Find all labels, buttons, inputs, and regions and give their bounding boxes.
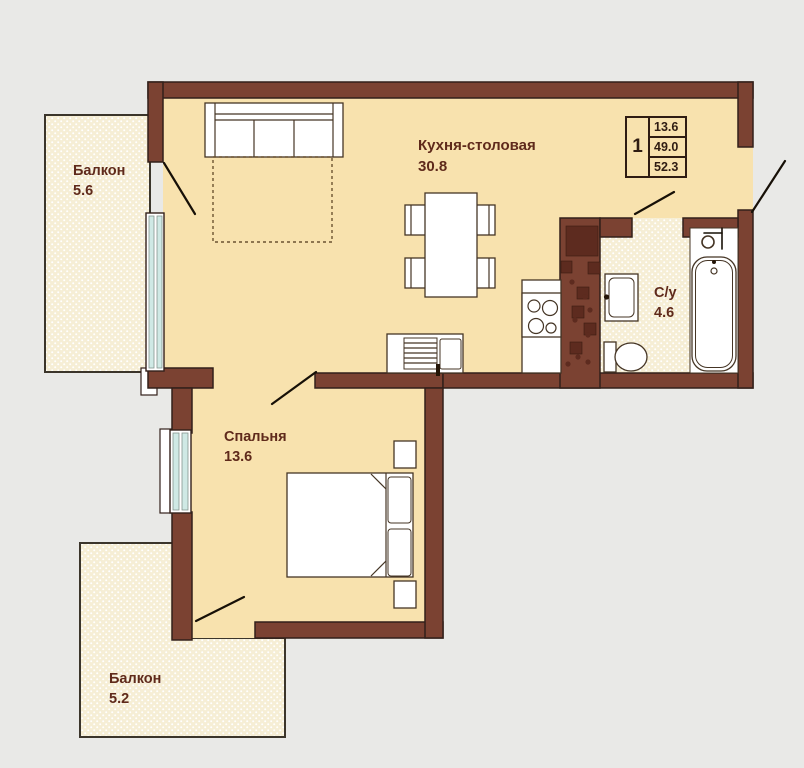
- bathroom-area: 4.6: [654, 303, 677, 323]
- wall-kitchen-bedroom: [315, 373, 443, 388]
- kitchen-dining-label: Кухня-столовая 30.8: [418, 136, 536, 177]
- balcony-bottom-name: Балкон: [109, 669, 161, 689]
- apartment-area-value: 49.0: [650, 136, 685, 156]
- balcony-bottom-area: 5.2: [109, 689, 161, 709]
- bedroom-label: Спальня 13.6: [224, 427, 287, 467]
- balcony-doorway-floor: [192, 622, 255, 638]
- living-area-value: 13.6: [650, 118, 685, 136]
- entrance-door-swing-icon: [752, 161, 785, 212]
- nightstand-icon: [394, 581, 416, 608]
- kitchen-dining-area: 30.8: [418, 157, 536, 178]
- wall-right-lower: [738, 210, 753, 388]
- wall-left-upper: [148, 82, 163, 162]
- balcony-top-area: 5.6: [73, 181, 125, 201]
- kitchen-dining-name: Кухня-столовая: [418, 136, 536, 157]
- balcony-top-label: Балкон 5.6: [73, 161, 125, 201]
- pillow-icon: [388, 529, 411, 576]
- bed-icon: [287, 473, 413, 577]
- kitchen-sink-icon: [387, 334, 463, 376]
- floor-plan: 1 13.6 49.0 52.3 Кухня-столовая 30.8 Спа…: [0, 0, 804, 768]
- nightstand-icon: [394, 441, 416, 468]
- washbasin-icon: [604, 274, 638, 321]
- bedroom-name: Спальня: [224, 427, 287, 447]
- wall-right-upper: [738, 82, 753, 147]
- bedroom-area: 13.6: [224, 447, 287, 467]
- wall-bedroom-left-lower: [172, 512, 192, 640]
- entrance-doorway-floor: [738, 147, 753, 210]
- balcony-bottom-label: Балкон 5.2: [109, 669, 161, 709]
- wall-top: [148, 82, 753, 98]
- wall-bedroom-left-upper: [172, 388, 192, 433]
- toilet-icon: [604, 342, 647, 372]
- dining-table-icon: [425, 193, 477, 297]
- apartment-info-box: 1 13.6 49.0 52.3: [625, 116, 687, 178]
- pillow-icon: [388, 477, 411, 523]
- bathroom-name: С/у: [654, 283, 677, 303]
- floors: [45, 98, 753, 737]
- balcony-top-name: Балкон: [73, 161, 125, 181]
- wall-bedroom-right: [425, 388, 443, 638]
- bathroom-doorway-floor: [632, 218, 683, 237]
- wall-bedroom-bottom: [255, 622, 443, 638]
- living-window-icon: [146, 213, 164, 371]
- rooms-count: 1: [627, 118, 648, 176]
- balcony-top-floor: [45, 115, 150, 372]
- total-area-value: 52.3: [650, 156, 685, 176]
- stove-icon: [522, 280, 561, 373]
- sofa-icon: [205, 103, 343, 157]
- bathroom-label: С/у 4.6: [654, 283, 677, 323]
- bathtub-icon: [690, 228, 738, 373]
- wall-bathroom-top-left: [600, 218, 632, 237]
- bedroom-window-icon: [170, 430, 191, 513]
